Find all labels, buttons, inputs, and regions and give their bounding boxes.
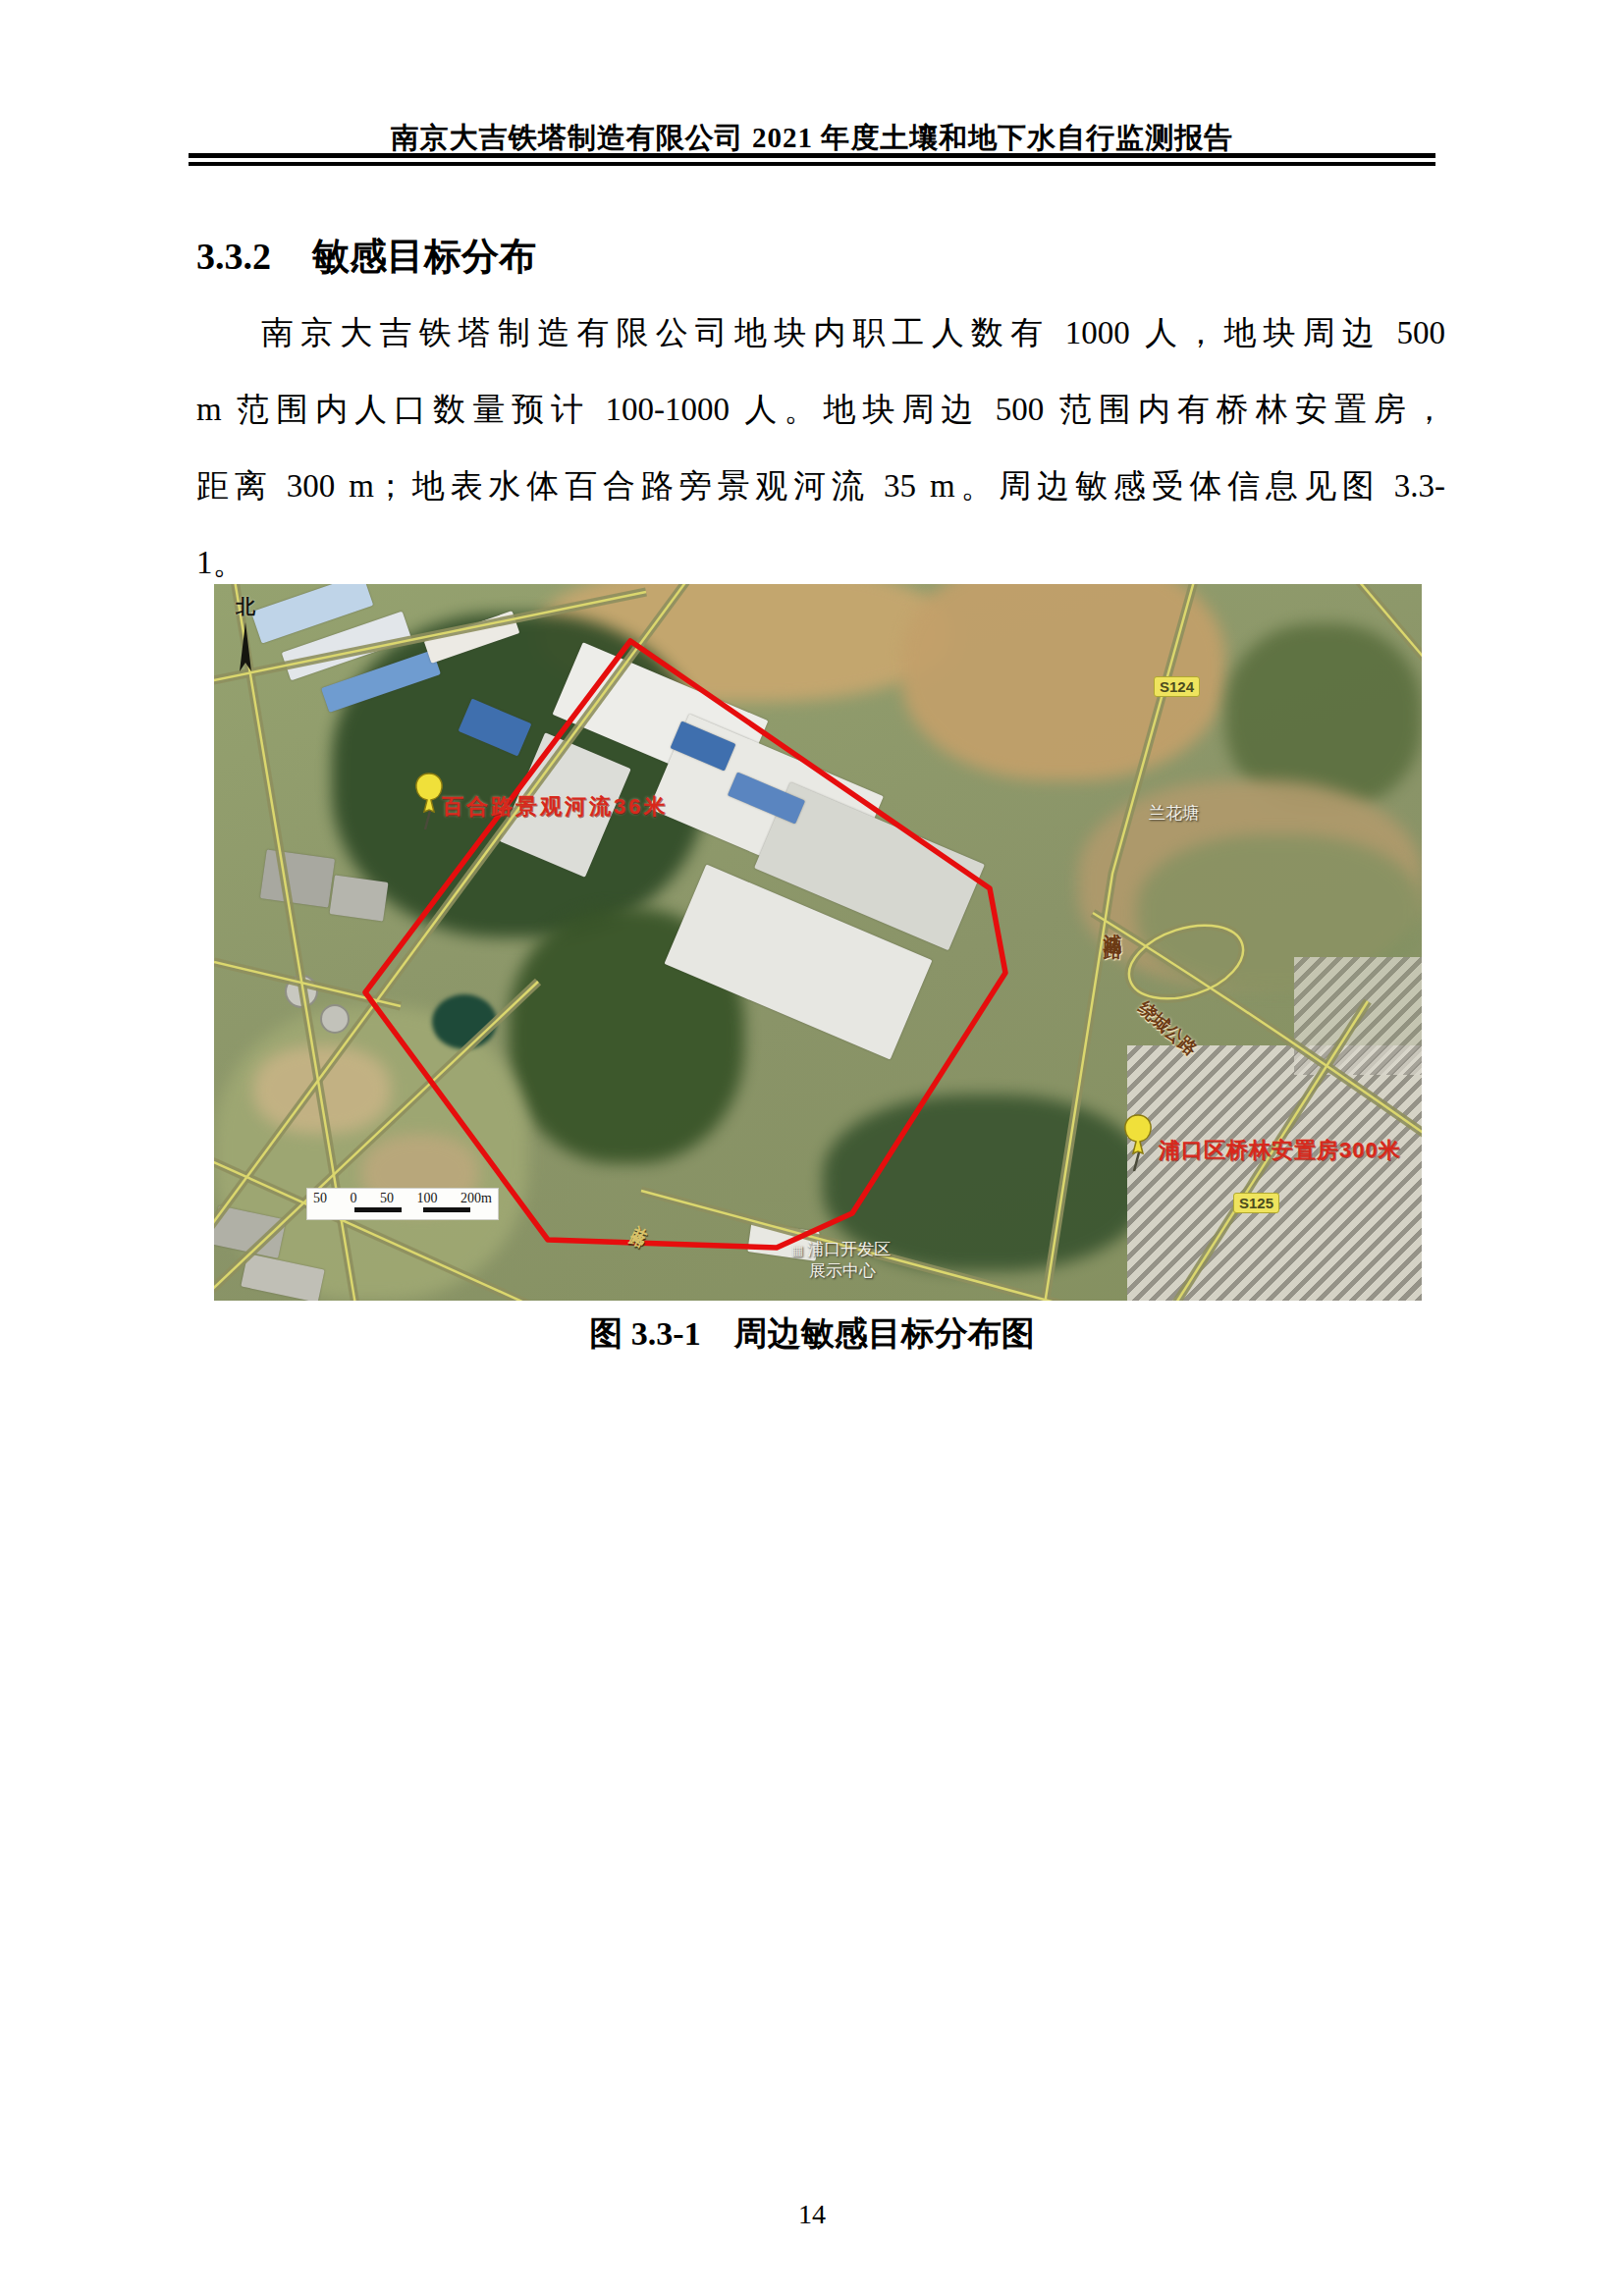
place-label-lanhuatang: 兰花塘 <box>1149 802 1199 825</box>
site-boundary-polygon <box>365 641 1005 1248</box>
north-needle-icon <box>236 620 255 681</box>
section-heading: 3.3.2敏感目标分布 <box>196 232 536 282</box>
housing-pin-label: 浦口区桥林安置房300米 <box>1159 1136 1401 1165</box>
paragraph-line: 距离 300 m；地表水体百合路旁景观河流 35 m。周边敏感受体信息见图 3.… <box>196 448 1445 524</box>
scale-bar-segment <box>354 1207 402 1212</box>
map-scale-bar: 50 0 50 100 200m <box>306 1188 499 1220</box>
report-page: 南京大吉铁塔制造有限公司 2021 年度土壤和地下水自行监测报告 3.3.2敏感… <box>0 0 1624 2296</box>
road-label-puwulu: 浦乌路 <box>1100 918 1125 930</box>
place-label-text: 浦口开发区 <box>807 1240 891 1258</box>
map-pin-icon <box>1119 1112 1157 1175</box>
river-pin-label: 百合路景观河流36米 <box>442 792 668 822</box>
figure-caption: 图 3.3-1周边敏感目标分布图 <box>0 1311 1624 1357</box>
body-paragraph: 南京大吉铁塔制造有限公司地块内职工人数有 1000 人，地块周边 500 m 范… <box>196 294 1445 601</box>
section-number: 3.3.2 <box>196 236 271 277</box>
scale-tick: 50 <box>313 1191 327 1205</box>
building-icon: ▦ <box>791 1243 803 1257</box>
header-rule <box>189 162 1435 166</box>
section-title: 敏感目标分布 <box>312 236 536 277</box>
scale-tick: 200m <box>460 1191 492 1205</box>
scale-tick: 0 <box>351 1191 357 1205</box>
scale-tick: 100 <box>417 1191 438 1205</box>
paragraph-line: m 范围内人口数量预计 100-1000 人。地块周边 500 范围内有桥林安置… <box>196 371 1445 448</box>
place-label-exhibition-center: 展示中心 <box>809 1259 876 1282</box>
scale-tick: 50 <box>380 1191 394 1205</box>
satellite-map-figure: 北 百合路景观河流36米 浦口区桥林安置房300米 S124 S125 兰花塘 … <box>214 584 1422 1301</box>
place-label-development-zone: ▦浦口开发区 <box>791 1238 891 1260</box>
figure-caption-label: 图 3.3-1 <box>589 1315 700 1352</box>
figure-caption-text: 周边敏感目标分布图 <box>734 1315 1035 1352</box>
page-number: 14 <box>0 2199 1624 2230</box>
header-rule <box>189 153 1435 158</box>
north-arrow: 北 <box>236 594 255 685</box>
paragraph-line: 南京大吉铁塔制造有限公司地块内职工人数有 1000 人，地块周边 500 <box>196 294 1445 371</box>
scale-bar-segment <box>423 1207 470 1212</box>
north-label: 北 <box>236 594 255 620</box>
route-badge-s125: S125 <box>1233 1193 1279 1213</box>
route-badge-s124: S124 <box>1154 676 1200 697</box>
page-header-title: 南京大吉铁塔制造有限公司 2021 年度土壤和地下水自行监测报告 <box>0 119 1624 158</box>
